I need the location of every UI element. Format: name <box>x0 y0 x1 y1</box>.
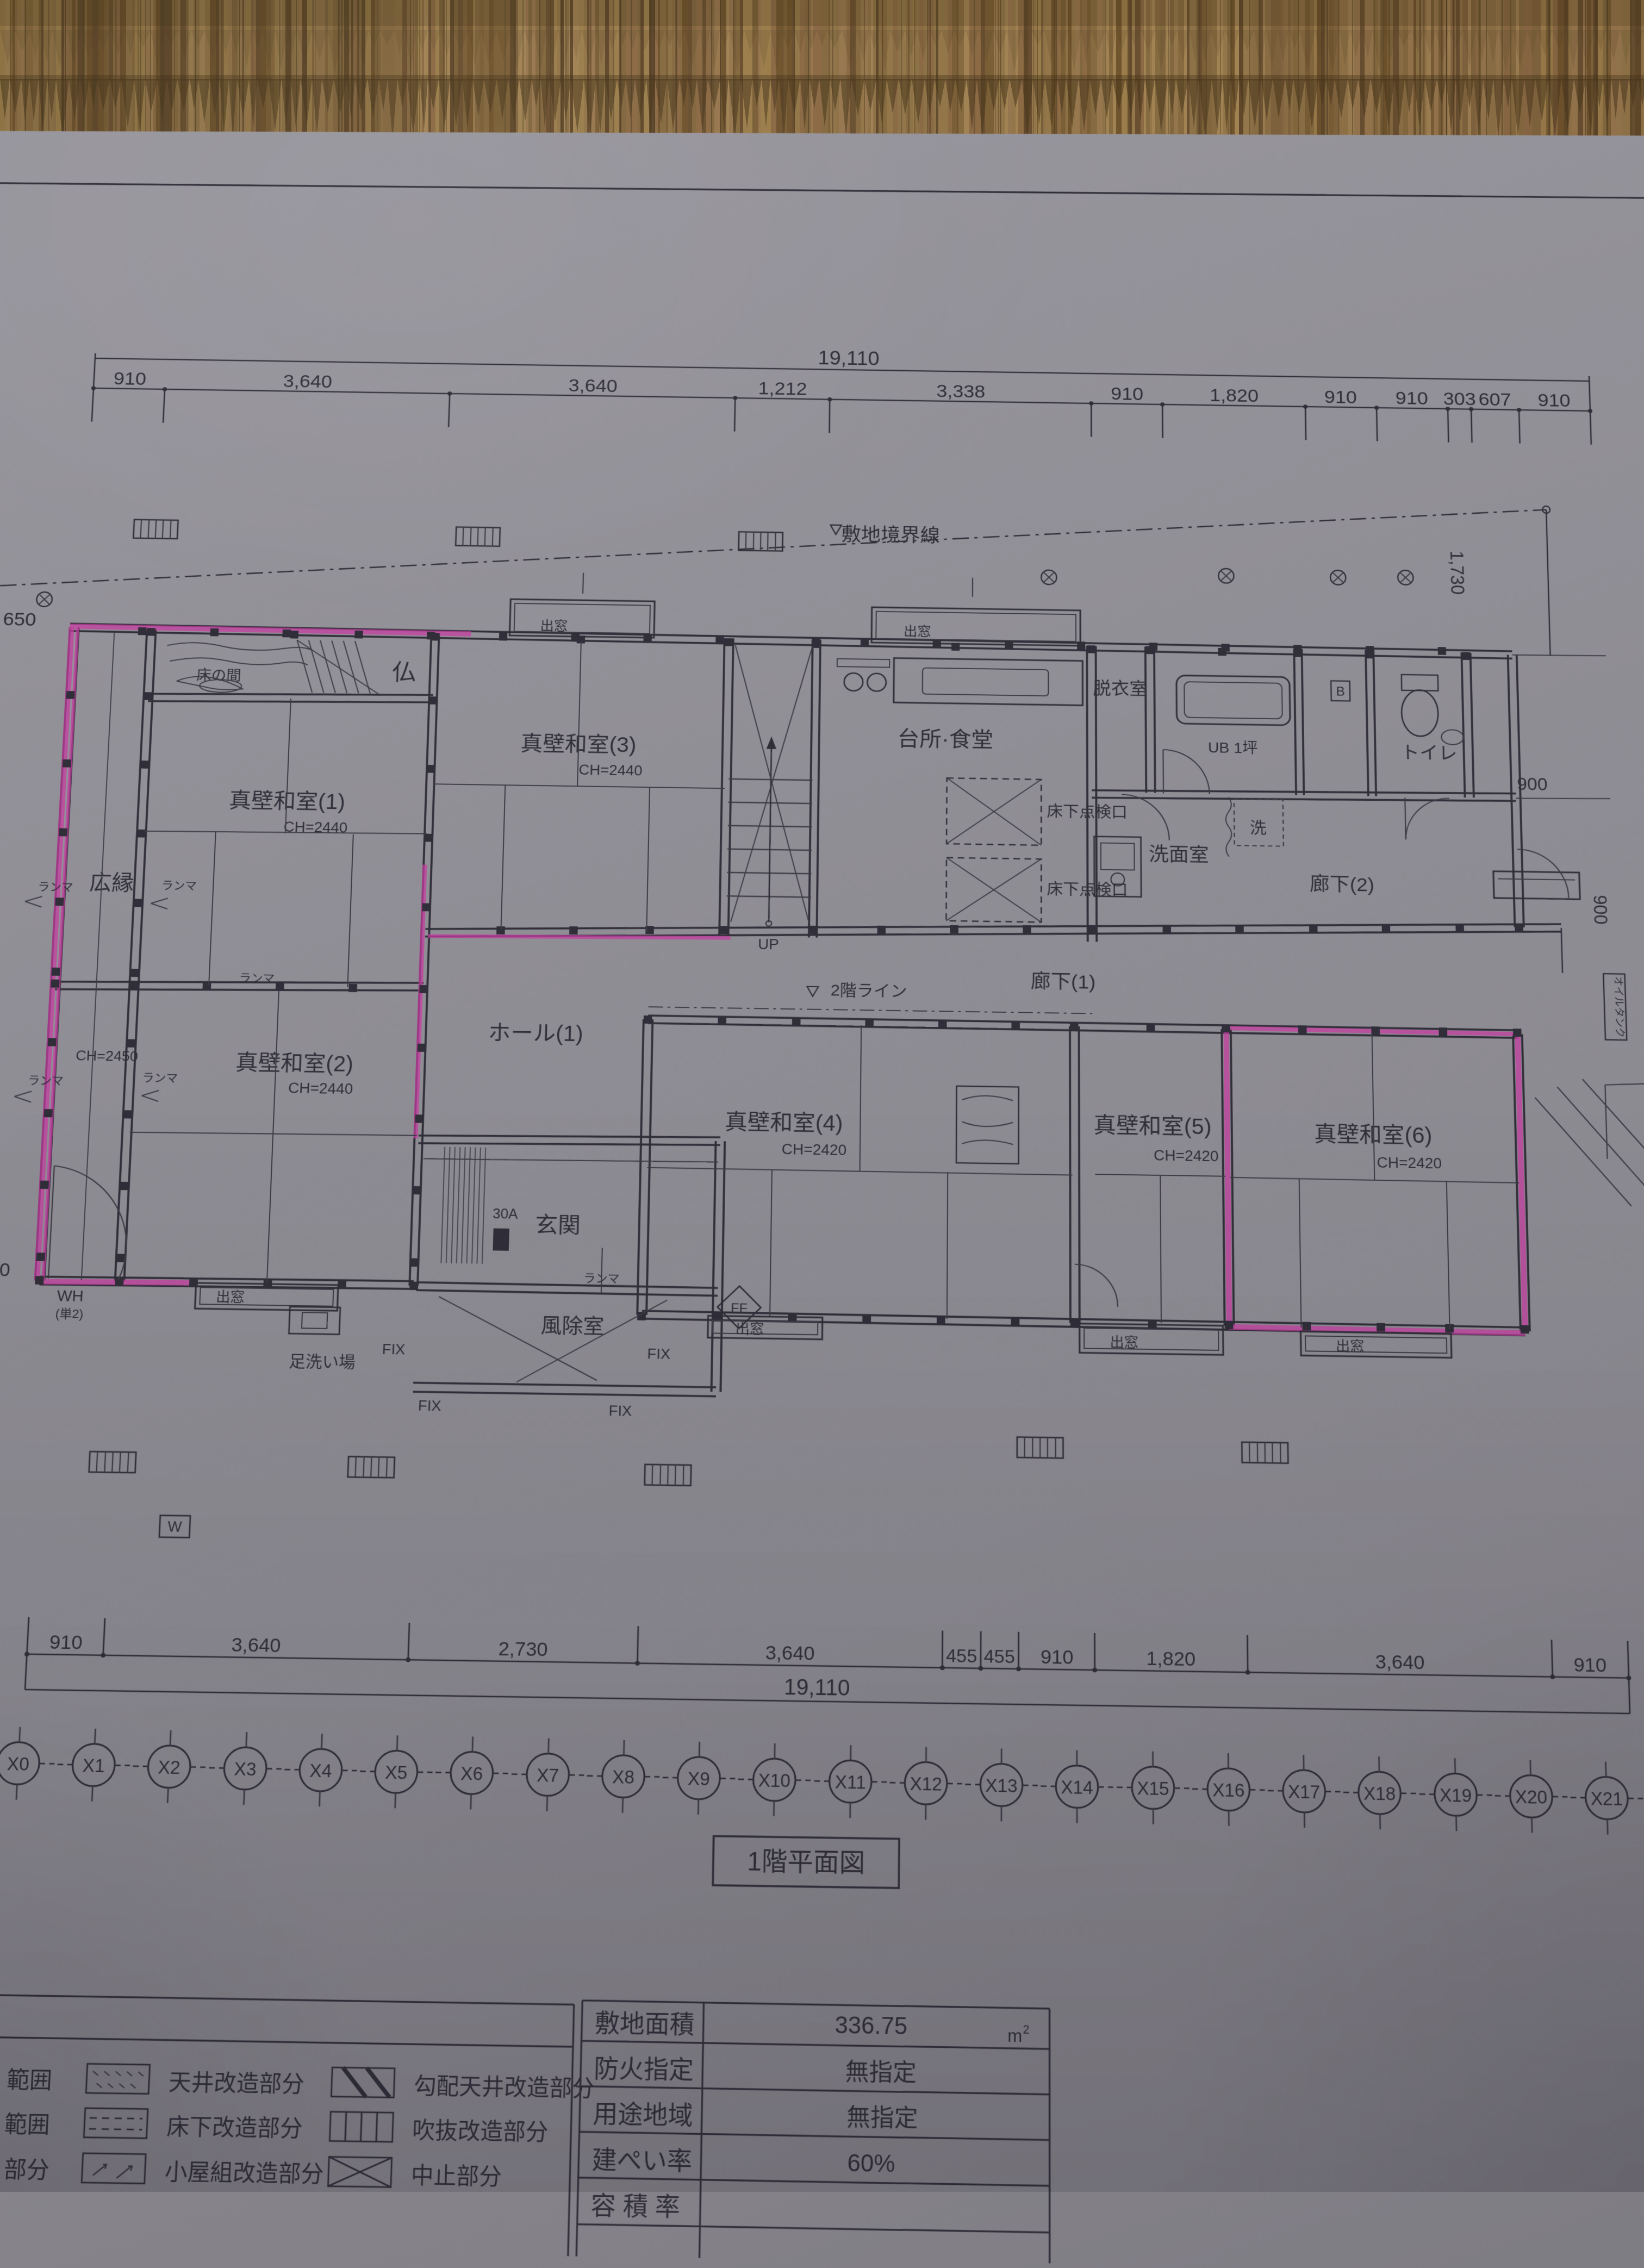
svg-text:オイルタンク: オイルタンク <box>1612 976 1627 1038</box>
svg-text:X18: X18 <box>1363 1784 1396 1805</box>
svg-text:B: B <box>1336 684 1345 699</box>
svg-text:X8: X8 <box>612 1768 635 1788</box>
svg-text:3,338: 3,338 <box>936 381 985 402</box>
svg-text:トイレ: トイレ <box>1400 742 1458 763</box>
svg-text:出窓: 出窓 <box>1110 1335 1138 1350</box>
svg-text:仏: 仏 <box>391 659 416 686</box>
svg-text:3,640: 3,640 <box>231 1634 282 1656</box>
svg-text:X21: X21 <box>1590 1789 1623 1810</box>
svg-text:910: 910 <box>1324 387 1357 408</box>
svg-text:出窓: 出窓 <box>904 624 931 639</box>
svg-text:勾配天井改造部分: 勾配天井改造部分 <box>413 2073 595 2101</box>
svg-text:床下点検口: 床下点検口 <box>1047 802 1127 821</box>
svg-text:910: 910 <box>1395 388 1428 409</box>
svg-text:無指定: 無指定 <box>845 2058 916 2086</box>
svg-text:CH=2440: CH=2440 <box>288 1080 353 1098</box>
svg-text:X6: X6 <box>460 1764 483 1784</box>
svg-text:建ぺい率: 建ぺい率 <box>591 2146 693 2176</box>
svg-text:455: 455 <box>946 1646 977 1667</box>
svg-text:1,212: 1,212 <box>758 378 807 399</box>
svg-text:3,640: 3,640 <box>568 375 618 396</box>
svg-text:出窓: 出窓 <box>216 1289 245 1305</box>
svg-text:910: 910 <box>1111 383 1143 404</box>
svg-text:650: 650 <box>3 609 37 631</box>
svg-text:1,820: 1,820 <box>1210 385 1259 406</box>
svg-text:X15: X15 <box>1137 1779 1169 1799</box>
svg-text:洗面室: 洗面室 <box>1149 844 1209 866</box>
svg-text:床下改造部分: 床下改造部分 <box>166 2114 303 2141</box>
svg-text:X3: X3 <box>234 1760 257 1780</box>
svg-text:X10: X10 <box>758 1771 790 1792</box>
svg-text:(単2): (単2) <box>55 1307 84 1321</box>
svg-text:FIX: FIX <box>608 1403 632 1420</box>
svg-text:容 積 率: 容 積 率 <box>590 2192 680 2222</box>
svg-text:台所·食堂: 台所·食堂 <box>898 727 994 752</box>
svg-text:出窓: 出窓 <box>1336 1338 1365 1354</box>
svg-text:910: 910 <box>1537 390 1571 411</box>
svg-text:455: 455 <box>984 1647 1015 1667</box>
svg-text:X16: X16 <box>1212 1781 1245 1802</box>
svg-text:2階ライン: 2階ライン <box>831 981 907 1000</box>
svg-text:脱衣室: 脱衣室 <box>1093 678 1148 699</box>
svg-text:303: 303 <box>1443 389 1476 410</box>
svg-text:FIX: FIX <box>647 1346 670 1362</box>
svg-text:真壁和室(5): 真壁和室(5) <box>1094 1113 1212 1139</box>
svg-text:洗: 洗 <box>1250 818 1267 837</box>
svg-text:X5: X5 <box>385 1763 408 1783</box>
svg-text:X9: X9 <box>688 1769 710 1790</box>
svg-text:部分: 部分 <box>3 2156 50 2183</box>
svg-text:ランマ: ランマ <box>38 881 73 894</box>
svg-text:ランマ: ランマ <box>239 972 275 985</box>
svg-text:2,730: 2,730 <box>498 1637 548 1660</box>
svg-text:CH=2440: CH=2440 <box>578 762 643 779</box>
svg-text:3,640: 3,640 <box>283 371 333 392</box>
svg-text:X11: X11 <box>835 1773 866 1793</box>
svg-text:玄関: 玄関 <box>535 1212 581 1238</box>
svg-text:防火指定: 防火指定 <box>594 2055 694 2085</box>
svg-text:範囲: 範囲 <box>6 2067 53 2093</box>
svg-text:出窓: 出窓 <box>540 619 568 633</box>
svg-text:X19: X19 <box>1440 1786 1472 1806</box>
svg-text:1,730: 1,730 <box>1446 551 1468 595</box>
svg-text:X4: X4 <box>309 1761 332 1781</box>
svg-text:19,110: 19,110 <box>784 1675 850 1700</box>
svg-text:X2: X2 <box>158 1758 180 1778</box>
svg-text:無指定: 無指定 <box>846 2103 918 2132</box>
svg-text:出窓: 出窓 <box>735 1321 764 1337</box>
svg-text:廊下(2): 廊下(2) <box>1310 873 1375 896</box>
svg-text:900: 900 <box>1590 895 1611 925</box>
svg-text:910: 910 <box>1573 1654 1607 1677</box>
svg-text:X20: X20 <box>1515 1787 1547 1808</box>
svg-text:X14: X14 <box>1061 1778 1093 1798</box>
svg-text:範囲: 範囲 <box>4 2111 51 2138</box>
svg-text:ランマ: ランマ <box>28 1074 64 1088</box>
svg-text:敷地面積: 敷地面積 <box>595 2010 695 2040</box>
svg-text:X12: X12 <box>910 1774 942 1795</box>
svg-text:m: m <box>1007 2025 1022 2046</box>
svg-text:ランマ: ランマ <box>583 1272 620 1286</box>
svg-text:3,640: 3,640 <box>1375 1650 1425 1673</box>
svg-text:CH=2420: CH=2420 <box>1154 1148 1219 1165</box>
svg-text:天井改造部分: 天井改造部分 <box>168 2069 304 2097</box>
svg-text:廊下(1): 廊下(1) <box>1031 970 1096 993</box>
svg-text:ランマ: ランマ <box>142 1071 178 1085</box>
svg-text:吹抜改造部分: 吹抜改造部分 <box>412 2117 549 2145</box>
svg-text:X7: X7 <box>537 1766 559 1786</box>
svg-text:607: 607 <box>1478 389 1511 410</box>
svg-text:910: 910 <box>113 368 147 389</box>
svg-text:1,820: 1,820 <box>1146 1647 1195 1670</box>
svg-text:風除室: 風除室 <box>540 1314 605 1339</box>
svg-text:60%: 60% <box>847 2149 895 2177</box>
svg-text:FIX: FIX <box>382 1342 406 1358</box>
svg-text:WH: WH <box>57 1287 84 1305</box>
svg-text:中止部分: 中止部分 <box>410 2163 502 2190</box>
svg-text:3,640: 3,640 <box>765 1641 815 1664</box>
svg-text:UP: UP <box>758 937 779 953</box>
svg-text:19,110: 19,110 <box>818 347 880 369</box>
svg-text:ランマ: ランマ <box>161 880 197 893</box>
svg-text:小屋組改造部分: 小屋組改造部分 <box>164 2159 324 2187</box>
svg-text:CH=2420: CH=2420 <box>1377 1155 1442 1172</box>
svg-text:X1: X1 <box>82 1756 105 1777</box>
svg-text:UB 1坪: UB 1坪 <box>1208 739 1258 756</box>
svg-text:CH=2420: CH=2420 <box>782 1141 847 1158</box>
svg-text:0: 0 <box>0 1259 11 1281</box>
svg-text:用途地域: 用途地域 <box>593 2100 693 2130</box>
svg-text:1階平面図: 1階平面図 <box>747 1847 865 1878</box>
svg-text:30A: 30A <box>493 1206 519 1222</box>
svg-text:ホール(1): ホール(1) <box>488 1020 583 1045</box>
svg-text:FF: FF <box>731 1301 748 1316</box>
svg-text:W: W <box>167 1519 182 1536</box>
svg-text:2: 2 <box>1023 2023 1029 2036</box>
svg-text:敷地境界線: 敷地境界線 <box>841 524 940 546</box>
svg-text:真壁和室(2): 真壁和室(2) <box>235 1050 354 1076</box>
svg-text:X0: X0 <box>7 1754 30 1774</box>
svg-text:336.75: 336.75 <box>835 2011 908 2040</box>
svg-text:900: 900 <box>1517 774 1548 794</box>
svg-text:910: 910 <box>1041 1646 1074 1668</box>
svg-text:CH=2450: CH=2450 <box>76 1048 139 1065</box>
svg-text:X13: X13 <box>985 1776 1017 1797</box>
svg-text:910: 910 <box>49 1631 83 1654</box>
svg-text:広縁: 広縁 <box>89 870 134 895</box>
svg-text:足洗い場: 足洗い場 <box>289 1353 356 1372</box>
svg-text:X17: X17 <box>1288 1783 1321 1803</box>
svg-text:真壁和室(4): 真壁和室(4) <box>725 1110 843 1136</box>
svg-text:FIX: FIX <box>418 1398 442 1415</box>
